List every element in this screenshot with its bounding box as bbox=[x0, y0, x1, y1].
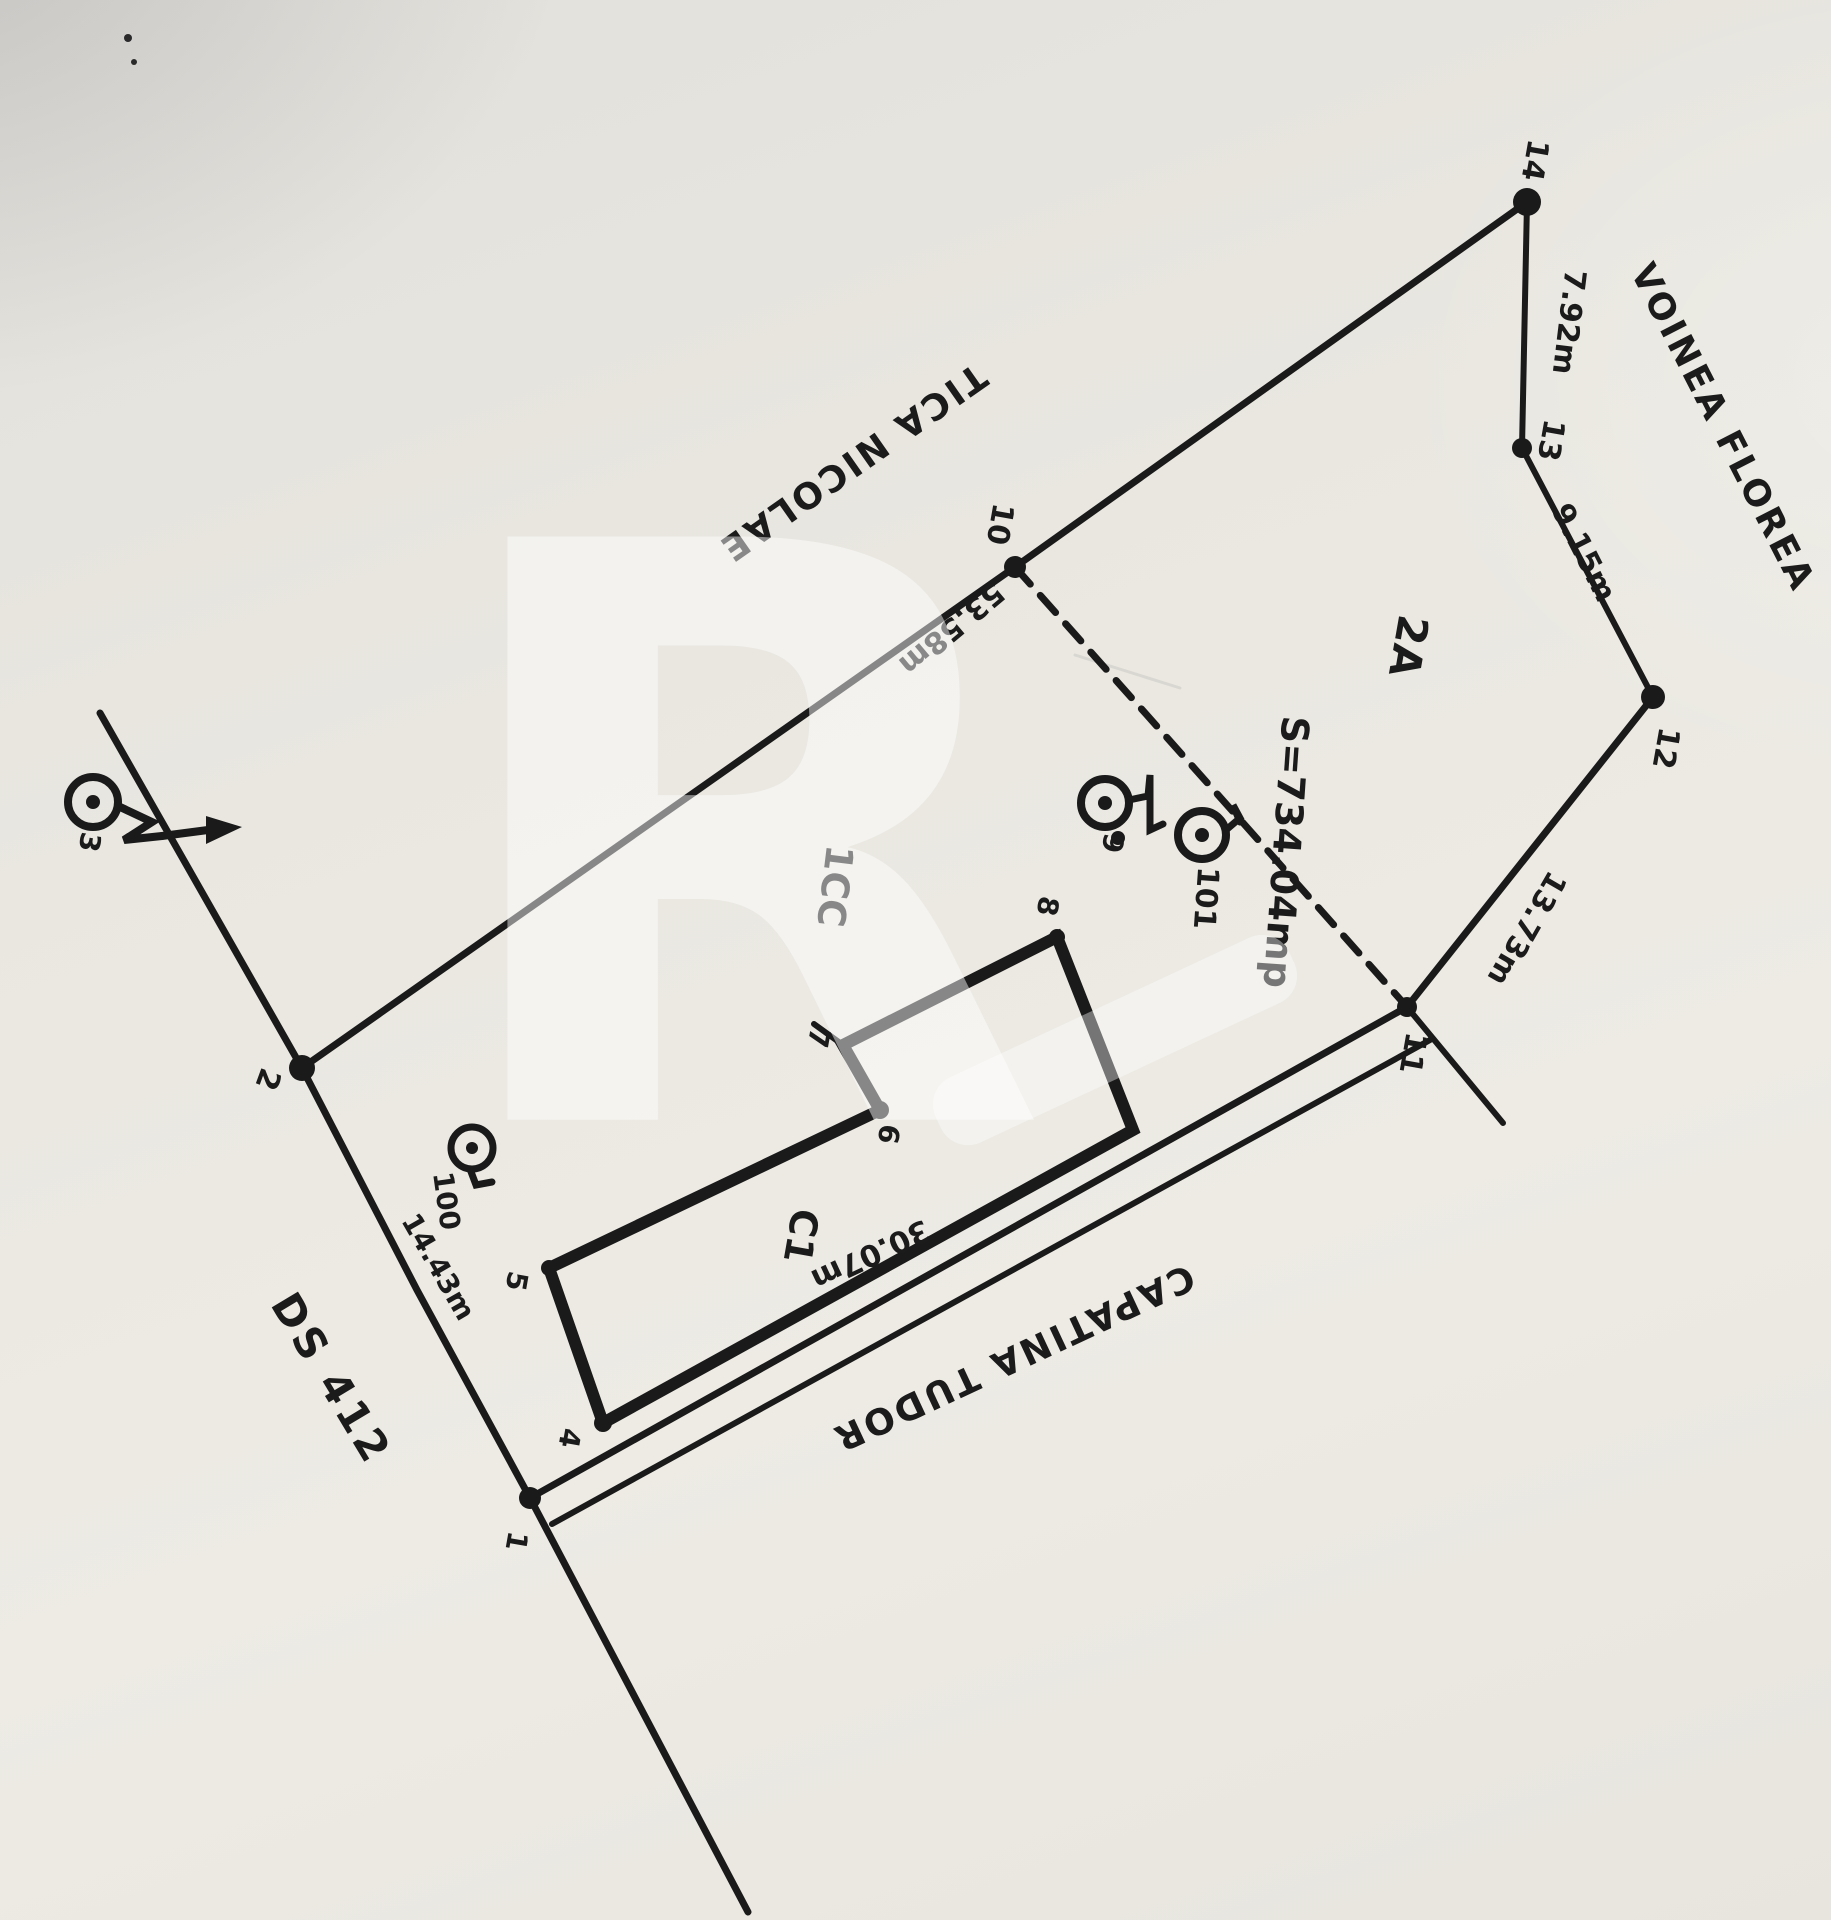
scanned-cadastral-sketch: 14 7.92m VOINEA FLOREA 13 9.15m 12 13.73… bbox=[0, 0, 1831, 1920]
point-label-10: 10 bbox=[981, 501, 1018, 547]
paper-specks bbox=[124, 34, 137, 65]
point-label-14: 14 bbox=[1516, 137, 1553, 183]
road-boundary-line bbox=[100, 713, 748, 1912]
side-14-13 bbox=[1522, 202, 1527, 448]
point-label-101: 101 bbox=[1188, 866, 1222, 931]
marker-3-arrow-head bbox=[206, 816, 242, 844]
point-label-12: 12 bbox=[1647, 725, 1684, 771]
parcel-label-2a: 2A bbox=[1382, 612, 1434, 680]
parcel-label-1cc: 1CC bbox=[811, 843, 859, 929]
side-12-11 bbox=[1407, 697, 1653, 1007]
side-11-1-parallel-line bbox=[552, 1040, 1430, 1524]
side-10-14 bbox=[1015, 202, 1527, 567]
side-11-1 bbox=[530, 1007, 1407, 1498]
dashed-division-line-10-11 bbox=[1015, 567, 1407, 1007]
point-label-11: 11 bbox=[1394, 1030, 1431, 1076]
point-label-13: 13 bbox=[1532, 417, 1569, 463]
paper-crease bbox=[1075, 655, 1180, 688]
building-label-c1: C1 bbox=[778, 1206, 825, 1266]
point-label-100: 100 bbox=[428, 1170, 464, 1232]
